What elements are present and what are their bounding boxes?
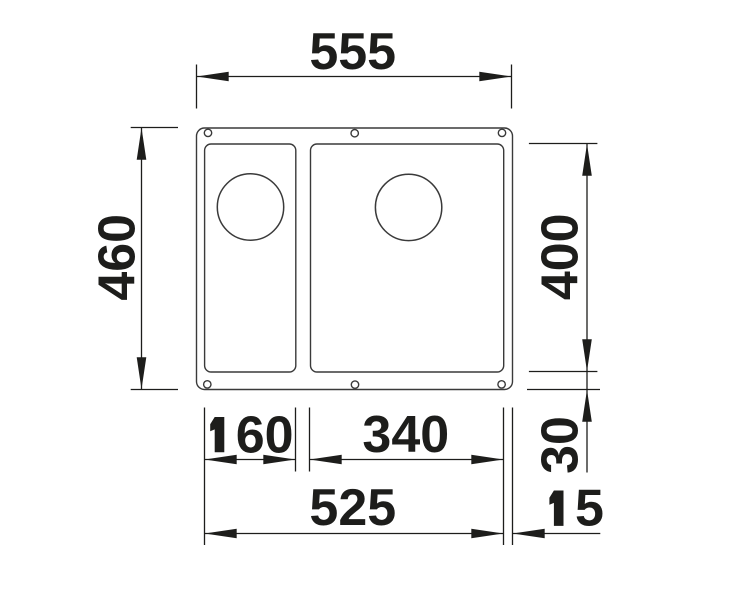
- svg-text:60: 60: [236, 406, 294, 464]
- svg-text:460: 460: [88, 214, 146, 301]
- svg-text:30: 30: [532, 416, 590, 474]
- svg-text:340: 340: [362, 406, 449, 464]
- svg-text:525: 525: [309, 479, 396, 537]
- svg-text:555: 555: [309, 23, 396, 81]
- svg-text:400: 400: [532, 213, 590, 300]
- svg-text:5: 5: [575, 480, 604, 538]
